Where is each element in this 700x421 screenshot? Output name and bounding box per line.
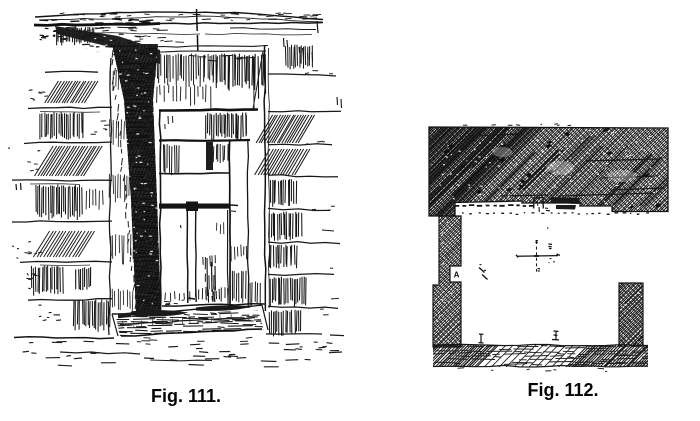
svg-text:Fig. 111.: Fig. 111. [151,386,221,406]
svg-text:Fig. 112.: Fig. 112. [527,380,598,400]
svg-text:A: A [454,271,460,280]
